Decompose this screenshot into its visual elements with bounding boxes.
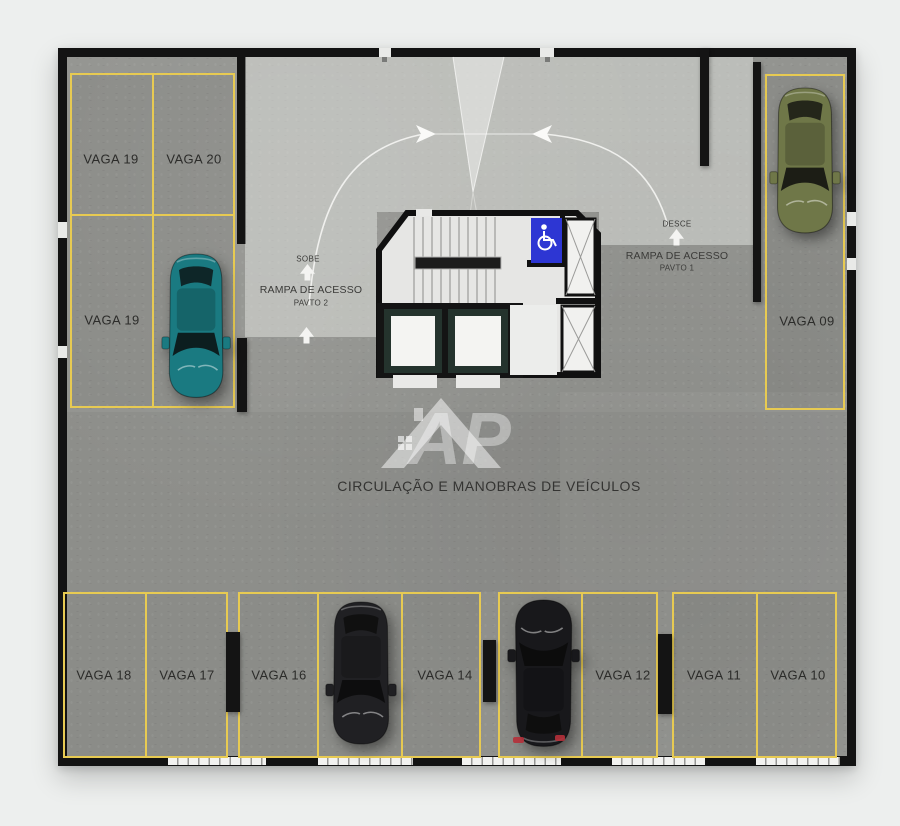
stall-label-vaga-19-upper: VAGA 19 bbox=[83, 152, 138, 167]
ramp-down-direction: DESCE bbox=[662, 220, 691, 229]
column-pillar bbox=[226, 632, 240, 712]
stall-label-vaga-19-lower: VAGA 19 bbox=[84, 313, 139, 328]
ramp-up-level: PAVTO 2 bbox=[294, 299, 329, 308]
elevator-threshold bbox=[393, 375, 437, 388]
stair-handrail bbox=[415, 257, 501, 269]
accessibility-sign bbox=[531, 218, 562, 263]
ramp-up-label: RAMPA DE ACESSO bbox=[260, 284, 363, 296]
taillight bbox=[555, 735, 565, 741]
taillight bbox=[513, 737, 524, 743]
ramp-down-level: PAVTO 1 bbox=[660, 264, 695, 273]
stall-label-vaga-17: VAGA 17 bbox=[159, 668, 214, 683]
watermark-logo: AP bbox=[381, 397, 511, 480]
stall-label-vaga-12: VAGA 12 bbox=[595, 668, 650, 683]
wall-stub bbox=[753, 62, 761, 302]
ramp-down-label: RAMPA DE ACESSO bbox=[626, 250, 729, 262]
circulation-label: CIRCULAÇÃO E MANOBRAS DE VEÍCULOS bbox=[337, 478, 641, 494]
stall-label-vaga-09: VAGA 09 bbox=[779, 314, 834, 329]
column-pillar bbox=[658, 634, 672, 714]
stall-label-vaga-16: VAGA 16 bbox=[251, 668, 306, 683]
car-black-2 bbox=[508, 600, 580, 746]
car-teal bbox=[162, 254, 230, 397]
stall-label-vaga-20: VAGA 20 bbox=[166, 152, 221, 167]
stall-label-vaga-14: VAGA 14 bbox=[417, 668, 472, 683]
column-pillar bbox=[237, 338, 247, 412]
ramp-up-direction: SOBE bbox=[296, 255, 319, 264]
core-stairwell bbox=[377, 209, 598, 378]
column-pillar bbox=[483, 640, 496, 702]
car-black-1 bbox=[326, 602, 396, 744]
stair-door-gap bbox=[416, 209, 432, 216]
car-olive bbox=[770, 88, 840, 233]
stall-label-vaga-10: VAGA 10 bbox=[770, 668, 825, 683]
elevator-threshold bbox=[456, 375, 500, 388]
parking-floor-plan: AP VAGA 19 VAGA 20 VAGA 19 VAGA 09 VAGA … bbox=[0, 0, 900, 826]
stall-label-vaga-18: VAGA 18 bbox=[76, 668, 131, 683]
wall-stub bbox=[700, 48, 709, 166]
plan-overlay: AP bbox=[0, 0, 900, 826]
core-corridor bbox=[510, 305, 557, 375]
stall-label-vaga-11: VAGA 11 bbox=[687, 668, 741, 683]
